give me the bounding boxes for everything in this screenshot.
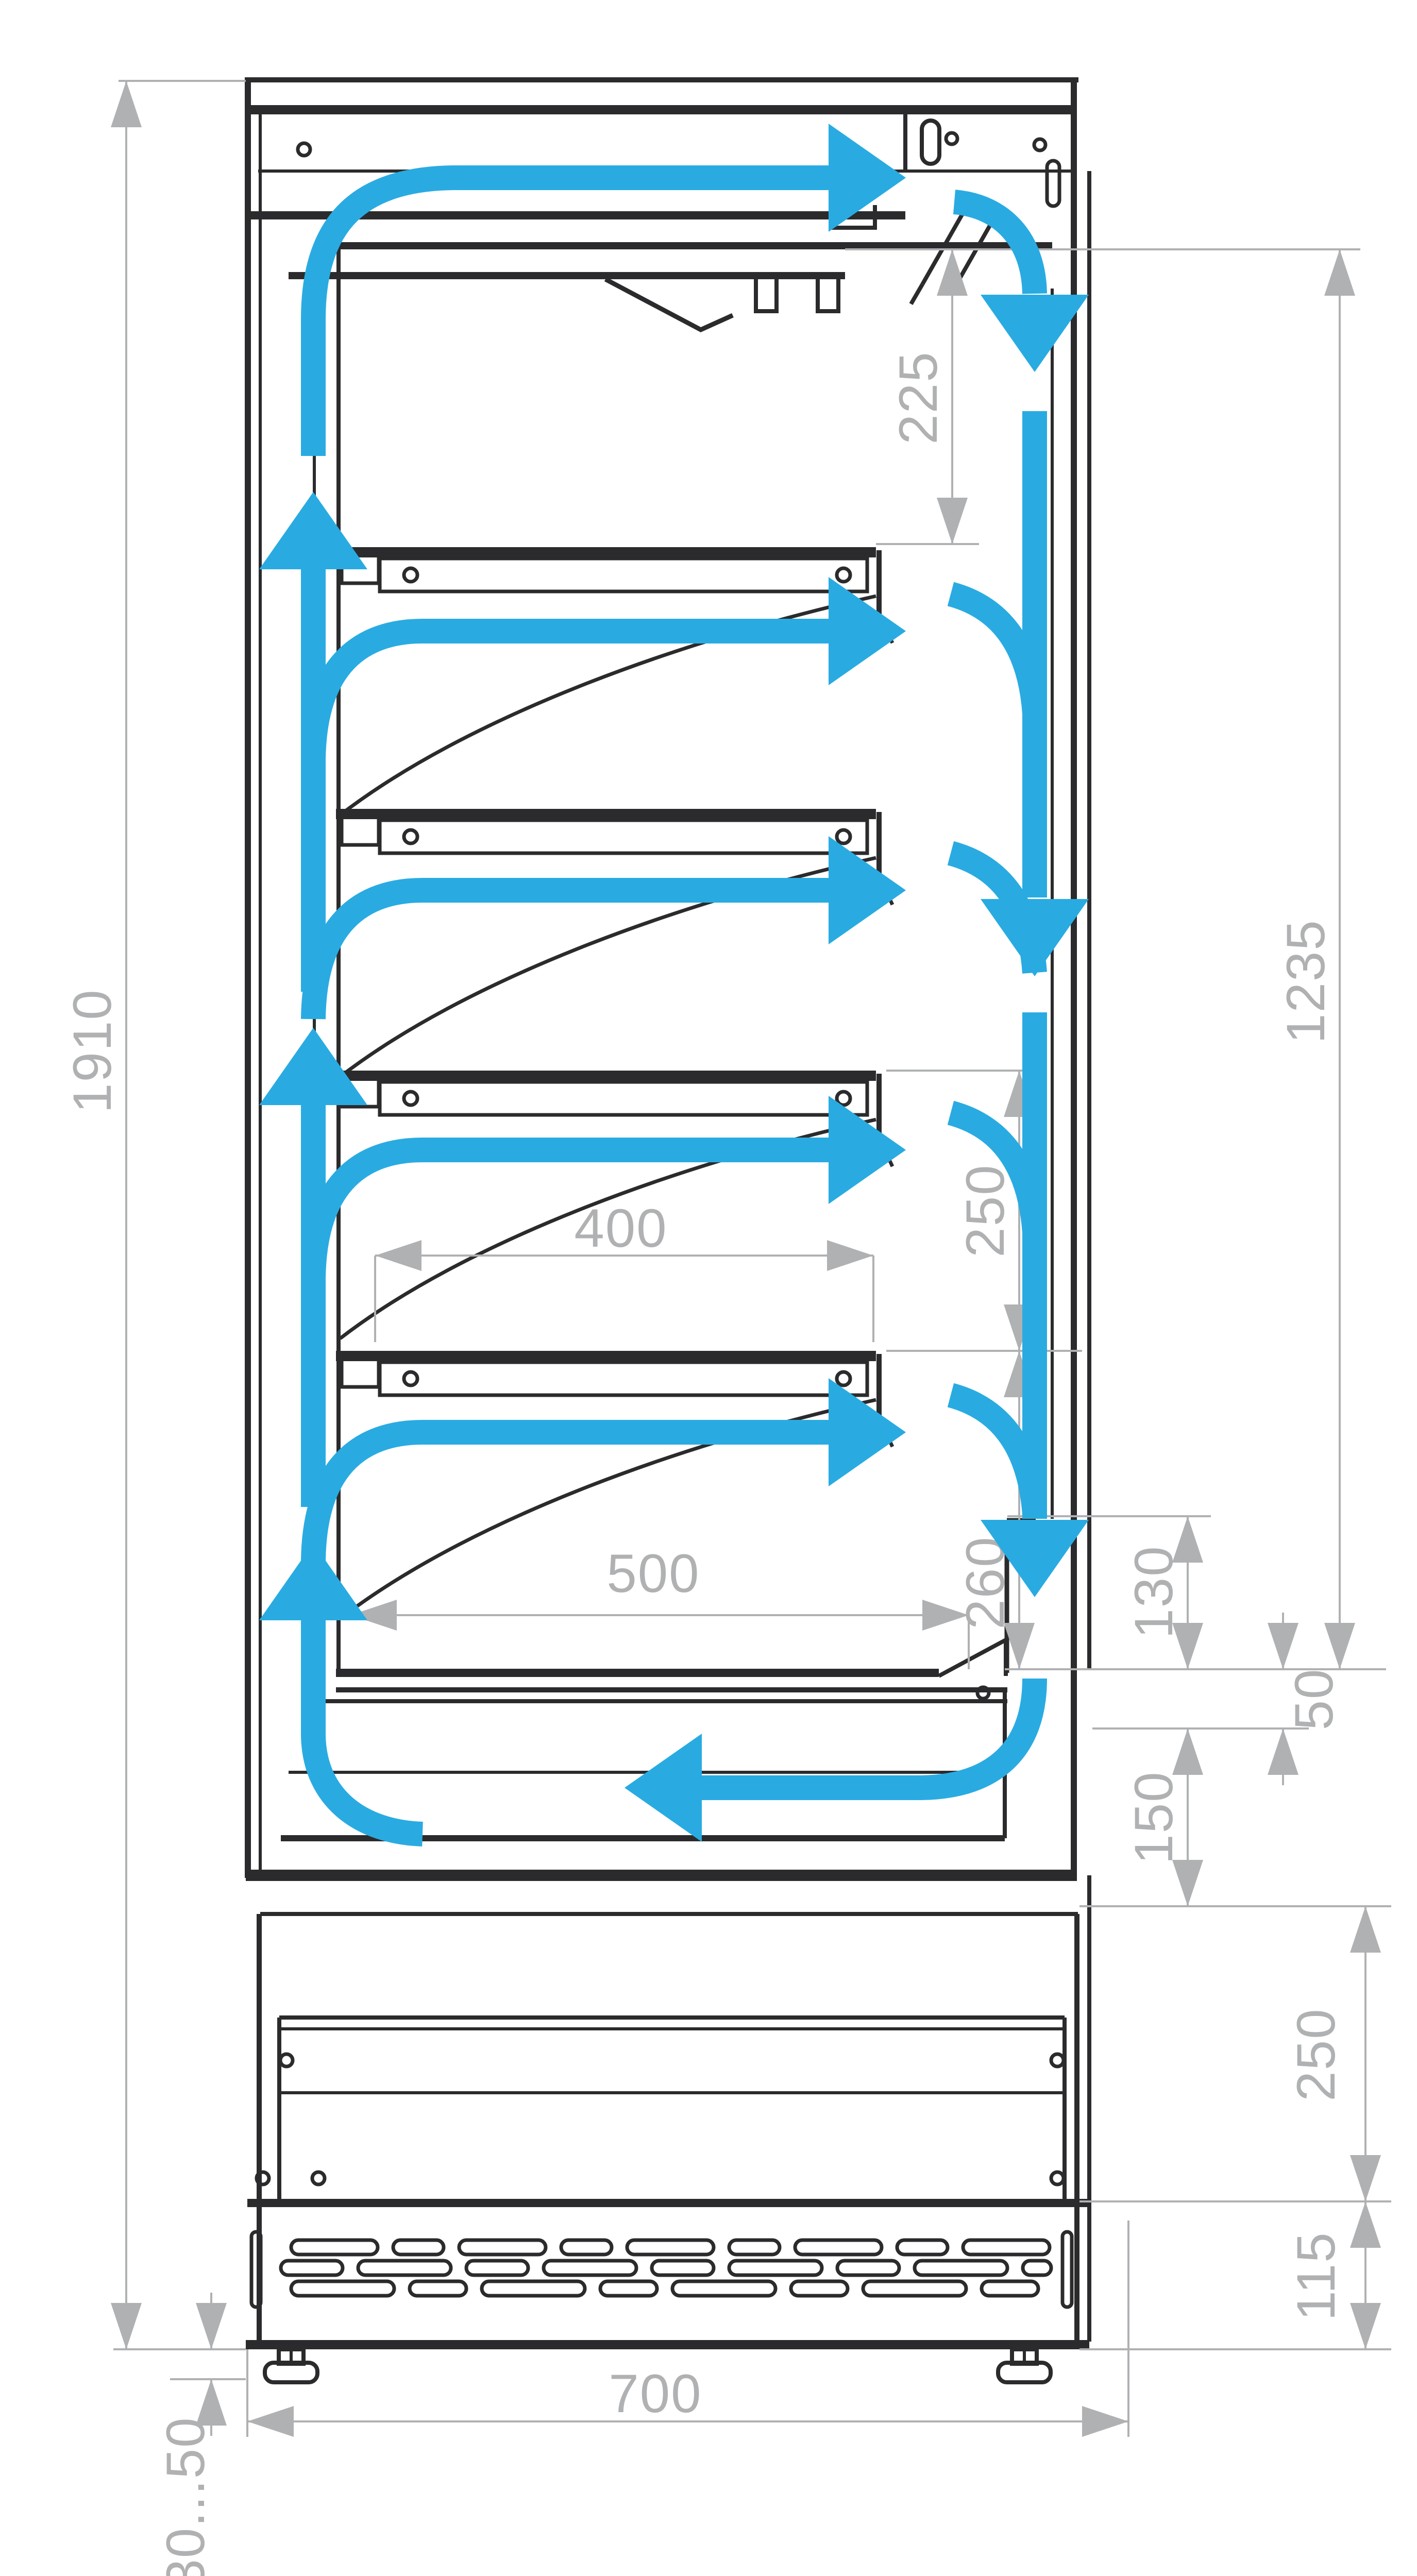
vent-slot [281, 2261, 343, 2275]
dimension-arrowhead [1172, 1860, 1203, 1906]
airflow-arrowhead [259, 492, 367, 569]
dimension-arrowhead [1350, 2155, 1381, 2201]
vent-slot [291, 2240, 378, 2255]
vent-slot-rows [281, 2240, 1051, 2296]
vent-slot [729, 2240, 780, 2255]
drip-tray [605, 279, 733, 330]
shelf [336, 812, 892, 1077]
vent-slot [837, 2261, 899, 2275]
dim-label-150: 150 [1124, 1771, 1184, 1864]
screw-icon [298, 143, 310, 156]
airflow-path [951, 1395, 1035, 1515]
dimension-arrowhead [1350, 1906, 1381, 1953]
screw-icon [1034, 139, 1045, 150]
dim-label-500: 500 [606, 1544, 700, 1604]
shelf [336, 550, 892, 815]
dimension-arrowhead [1082, 2406, 1128, 2437]
dimension-arrowhead [1268, 1728, 1298, 1775]
dim-label-700: 700 [609, 2364, 702, 2424]
vent-slot [358, 2261, 451, 2275]
vent-slot [393, 2240, 444, 2255]
dimension-arrowhead [111, 81, 142, 127]
dim-label-50: 50 [1284, 1668, 1344, 1731]
dim-label-130: 130 [1124, 1545, 1184, 1638]
vent-slot [791, 2281, 848, 2296]
dimension-arrowhead [1324, 1623, 1355, 1669]
screw-icon [946, 133, 957, 144]
dimension-arrowhead [1172, 1728, 1203, 1775]
fan-hanger [756, 279, 777, 311]
vent-slot [863, 2281, 966, 2296]
shelf-bracket [342, 1357, 379, 1387]
shelf-body [380, 558, 867, 591]
shelf-body [380, 820, 867, 853]
vent-slot-top [1047, 161, 1059, 206]
foot [265, 2349, 317, 2382]
vent-slot [1023, 2261, 1051, 2275]
vent-slot [459, 2240, 546, 2255]
dim-label-400: 400 [574, 1198, 667, 1259]
dim-label-1910: 1910 [62, 989, 123, 1113]
dimension-arrowhead [1324, 249, 1355, 296]
screw-icon [1051, 2172, 1064, 2184]
vent-slot [410, 2281, 466, 2296]
vent-slot [982, 2281, 1038, 2296]
shelf-body [380, 1082, 867, 1115]
vent-grille [246, 2203, 1089, 2345]
dimension-arrowhead [827, 1240, 873, 1271]
airflow-path [313, 1432, 829, 1561]
dim-label-225: 225 [888, 351, 949, 444]
counter-band [246, 1875, 1078, 1914]
vent-slot [544, 2261, 636, 2275]
dim-label-1235: 1235 [1276, 919, 1336, 1044]
dimension-arrowhead [1350, 2303, 1381, 2349]
screw-icon [312, 2172, 325, 2184]
fan-hanger [818, 279, 838, 311]
dimension-arrowhead [111, 2303, 142, 2349]
shelves [336, 550, 892, 1619]
shelf-body [380, 1362, 867, 1395]
vent-slot [600, 2281, 657, 2296]
airflow-path [951, 594, 1035, 714]
vent-slot [672, 2281, 775, 2296]
dimension-arrowhead [1350, 2201, 1381, 2248]
screw-icon [977, 1687, 989, 1699]
dimension-arrowhead [196, 2303, 227, 2349]
vent-slot [915, 2261, 1007, 2275]
screw-icon [1051, 2054, 1064, 2066]
cabinet-cross-section-drawing: 1910 225 1235 250 400 260 500 130 50 150… [0, 0, 1417, 2576]
dim-label-115: 115 [1286, 2231, 1346, 2320]
vent-slot-vertical [1062, 2232, 1072, 2307]
vent-slot [652, 2261, 714, 2275]
dimension-arrowhead [375, 1240, 421, 1271]
dimension-arrowhead [937, 498, 968, 544]
vent-slot [466, 2261, 528, 2275]
dim-label-250-shelf: 250 [955, 1164, 1016, 1257]
vent-slot [963, 2240, 1050, 2255]
vent-slot [561, 2240, 612, 2255]
airflow-path [313, 631, 829, 760]
foot [998, 2349, 1051, 2382]
shelf-bracket [342, 815, 379, 845]
hinge-slot [922, 121, 939, 164]
vent-slot [482, 2281, 585, 2296]
dimension-arrowhead [1268, 1623, 1298, 1669]
vent-slot [291, 2281, 394, 2296]
vent-slot [729, 2261, 822, 2275]
dim-label-250-compartment: 250 [1286, 2008, 1346, 2101]
vent-slot [627, 2240, 714, 2255]
airflow-arrowhead [625, 1734, 702, 1842]
airflow-path [313, 890, 829, 1019]
vent-slot [897, 2240, 948, 2255]
vent-slot [795, 2240, 882, 2255]
vent-slot-vertical [251, 2232, 261, 2307]
dim-label-30-50: 30...50 [156, 2416, 216, 2576]
airflow-path [313, 1618, 423, 1834]
dimension-arrowhead [247, 2406, 294, 2437]
screw-icon [280, 2054, 293, 2066]
